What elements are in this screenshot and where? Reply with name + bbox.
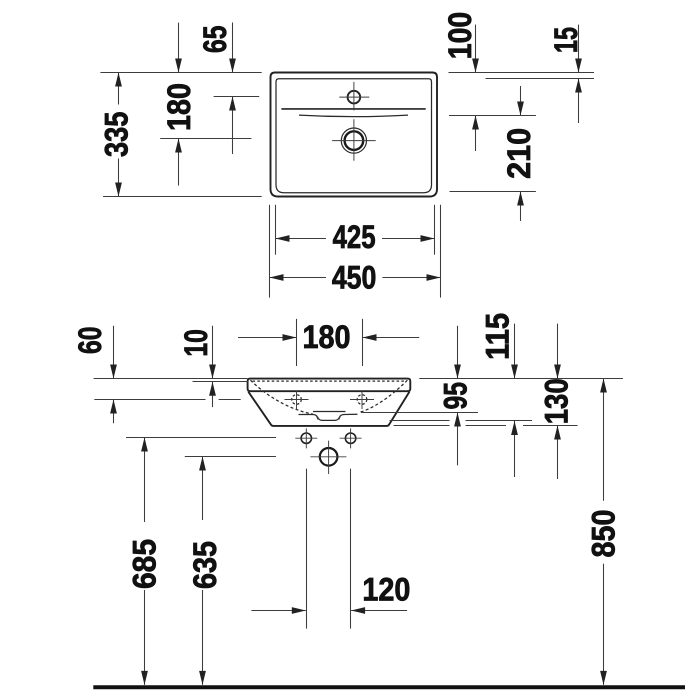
svg-text:65: 65 xyxy=(197,26,233,54)
svg-text:95: 95 xyxy=(438,382,474,410)
svg-text:685: 685 xyxy=(126,539,162,589)
svg-text:635: 635 xyxy=(187,541,223,589)
svg-text:450: 450 xyxy=(332,259,377,295)
svg-text:100: 100 xyxy=(442,12,478,60)
svg-text:210: 210 xyxy=(501,128,537,179)
svg-text:60: 60 xyxy=(72,326,108,354)
svg-text:120: 120 xyxy=(362,572,410,608)
svg-text:115: 115 xyxy=(480,313,516,360)
svg-text:335: 335 xyxy=(99,112,135,158)
svg-text:10: 10 xyxy=(178,329,214,357)
svg-text:425: 425 xyxy=(333,219,376,255)
svg-text:15: 15 xyxy=(548,27,584,53)
svg-text:130: 130 xyxy=(538,378,574,424)
svg-text:850: 850 xyxy=(586,510,622,558)
svg-text:180: 180 xyxy=(303,319,351,355)
svg-text:180: 180 xyxy=(161,83,197,131)
